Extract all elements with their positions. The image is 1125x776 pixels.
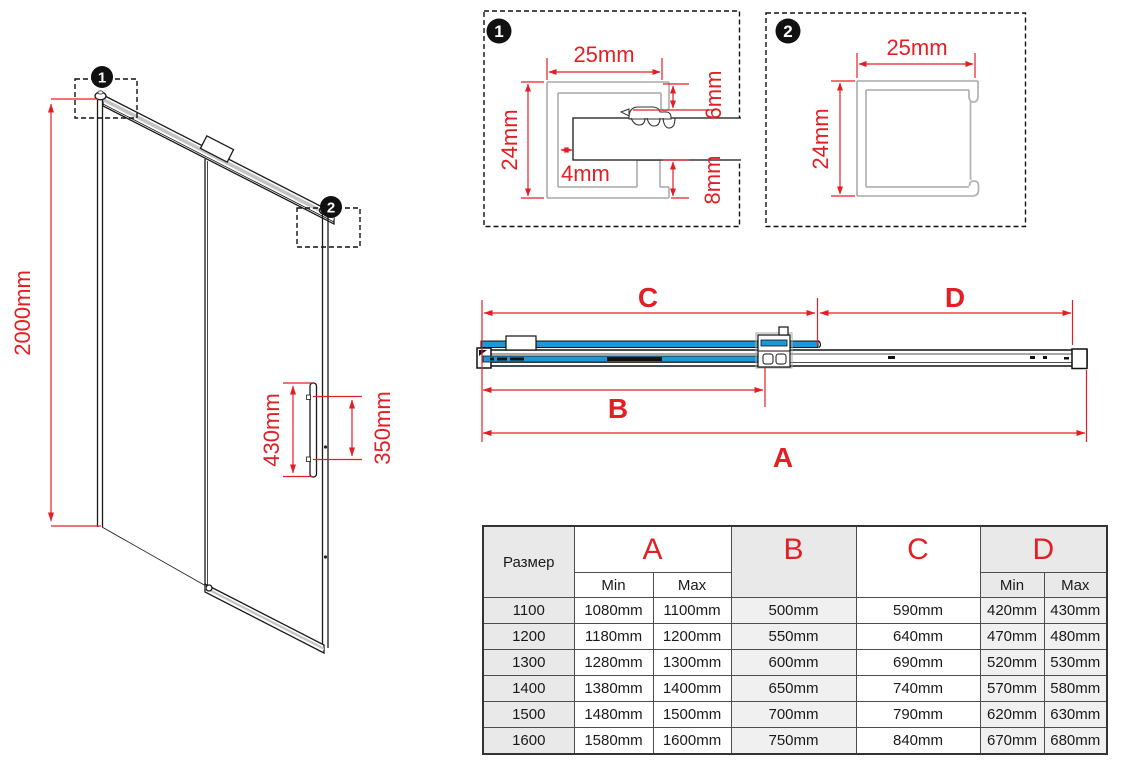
d-max-cell: 430mm [1044, 598, 1107, 624]
dim-350mm-label: 350mm [370, 391, 395, 464]
a-max-cell: 1600mm [653, 728, 731, 754]
d-min-cell: 670mm [980, 728, 1044, 754]
dim-6mm-label: 6mm [701, 71, 726, 120]
dim-25mm: 25mm [857, 35, 975, 78]
a-min-cell: 1180mm [574, 624, 653, 650]
table-row: 1200 1180mm 1200mm 550mm 640mm 470mm 480… [483, 624, 1107, 650]
a-min-cell: 1480mm [574, 702, 653, 728]
dim-24mm: 24mm [497, 82, 544, 198]
roller-carriage [756, 327, 792, 368]
d-min-cell: 570mm [980, 676, 1044, 702]
d-max-cell: 630mm [1044, 702, 1107, 728]
b-cell: 750mm [731, 728, 856, 754]
post-screw [324, 555, 327, 558]
a-max-cell: 1100mm [653, 598, 731, 624]
callout-1-number: 1 [98, 70, 106, 87]
detail-1-callout: 1 [487, 19, 512, 44]
profile-detail-1: 25mm 24mm 6mm 8mm 4mm [483, 10, 741, 228]
dim-24mm-label: 24mm [808, 108, 833, 169]
detail-2-callout: 2 [776, 19, 801, 44]
d-min-cell: 520mm [980, 650, 1044, 676]
post-screw [324, 445, 327, 448]
column-a-header: A [574, 526, 731, 573]
column-d-header: D [980, 526, 1107, 573]
callout-2-number: 2 [327, 200, 335, 217]
c-cell: 790mm [856, 702, 980, 728]
d-min-header: Min [980, 573, 1044, 598]
dim-d: D [820, 282, 1073, 345]
dim-2000mm-label: 2000mm [10, 270, 35, 356]
bottom-roller [206, 585, 212, 591]
c-cell: 740mm [856, 676, 980, 702]
d-max-cell: 580mm [1044, 676, 1107, 702]
a-min-cell: 1580mm [574, 728, 653, 754]
b-cell: 650mm [731, 676, 856, 702]
c-cell: 590mm [856, 598, 980, 624]
wall-bracket [506, 336, 536, 350]
b-cell: 500mm [731, 598, 856, 624]
b-cell: 600mm [731, 650, 856, 676]
dim-b-label: B [608, 393, 628, 424]
handle-mount [307, 395, 311, 400]
dim-25mm-label: 25mm [573, 42, 634, 67]
dim-25mm-label: 25mm [886, 35, 947, 60]
d-max-cell: 530mm [1044, 650, 1107, 676]
dim-2000mm: 2000mm [10, 99, 101, 526]
c-cell: 840mm [856, 728, 980, 754]
rail-right-endcap [1072, 349, 1087, 369]
size-cell: 1300 [483, 650, 574, 676]
glass-panel-section [573, 118, 741, 160]
anti-jump-block [779, 327, 788, 335]
dim-350mm: 350mm [313, 391, 395, 464]
table-row: 1600 1580mm 1600mm 750mm 840mm 670mm 680… [483, 728, 1107, 754]
dim-c-label: C [638, 282, 658, 313]
table-row: 1100 1080mm 1100mm 500mm 590mm 420mm 430… [483, 598, 1107, 624]
dim-24mm-label: 24mm [497, 109, 522, 170]
a-min-cell: 1380mm [574, 676, 653, 702]
dim-8mm: 8mm [663, 156, 725, 205]
dim-b: B [483, 368, 765, 424]
table-row: 1300 1280mm 1300mm 600mm 690mm 520mm 530… [483, 650, 1107, 676]
size-cell: 1600 [483, 728, 574, 754]
size-cell: 1100 [483, 598, 574, 624]
d-min-cell: 620mm [980, 702, 1044, 728]
size-cell: 1400 [483, 676, 574, 702]
dim-d-label: D [945, 282, 965, 313]
dim-25mm: 25mm [547, 42, 662, 80]
door-perspective-diagram: 2000mm 430mm 350mm 1 2 [0, 0, 460, 776]
door-structure [95, 91, 334, 653]
profile-detail-2: 25mm 24mm 2 [765, 12, 1027, 228]
roller-wheel [763, 354, 773, 364]
dim-4mm-label: 4mm [561, 161, 610, 186]
table-row: 1400 1380mm 1400mm 650mm 740mm 570mm 580… [483, 676, 1107, 702]
a-min-header: Min [574, 573, 653, 598]
d-max-cell: 480mm [1044, 624, 1107, 650]
d-max-header: Max [1044, 573, 1107, 598]
a-max-cell: 1400mm [653, 676, 731, 702]
shower-door-technical-drawing: 2000mm 430mm 350mm 1 2 [0, 0, 1125, 776]
b-cell: 550mm [731, 624, 856, 650]
detail-2-number: 2 [783, 22, 792, 41]
a-max-header: Max [653, 573, 731, 598]
handle-mount [307, 457, 311, 462]
table-row: 1500 1480mm 1500mm 700mm 790mm 620mm 630… [483, 702, 1107, 728]
d-min-cell: 470mm [980, 624, 1044, 650]
a-max-cell: 1500mm [653, 702, 731, 728]
a-min-cell: 1280mm [574, 650, 653, 676]
dim-a: A [483, 370, 1087, 473]
dim-430mm: 430mm [259, 383, 312, 477]
d-max-cell: 680mm [1044, 728, 1107, 754]
column-c-header: C [856, 526, 980, 598]
d-min-cell: 420mm [980, 598, 1044, 624]
size-table: Размер A B C D Min Max Min Max 1100 1080… [482, 525, 1108, 755]
dim-430mm-label: 430mm [259, 393, 284, 466]
column-b-header: B [731, 526, 856, 598]
size-cell: 1200 [483, 624, 574, 650]
b-cell: 700mm [731, 702, 856, 728]
detail-1-number: 1 [494, 22, 503, 41]
a-min-cell: 1080mm [574, 598, 653, 624]
sliding-glass-strip [483, 356, 765, 362]
c-cell: 690mm [856, 650, 980, 676]
roller-wheel [776, 354, 786, 364]
dim-a-label: A [773, 442, 793, 473]
rail-top-view: C D B A [460, 270, 1125, 480]
size-cell: 1500 [483, 702, 574, 728]
post-profile-section [857, 81, 979, 196]
dim-8mm-label: 8mm [700, 156, 725, 205]
a-max-cell: 1200mm [653, 624, 731, 650]
floor-line [102, 527, 206, 586]
a-max-cell: 1300mm [653, 650, 731, 676]
c-cell: 640mm [856, 624, 980, 650]
dim-24mm: 24mm [808, 81, 855, 196]
size-column-header: Размер [483, 526, 574, 598]
